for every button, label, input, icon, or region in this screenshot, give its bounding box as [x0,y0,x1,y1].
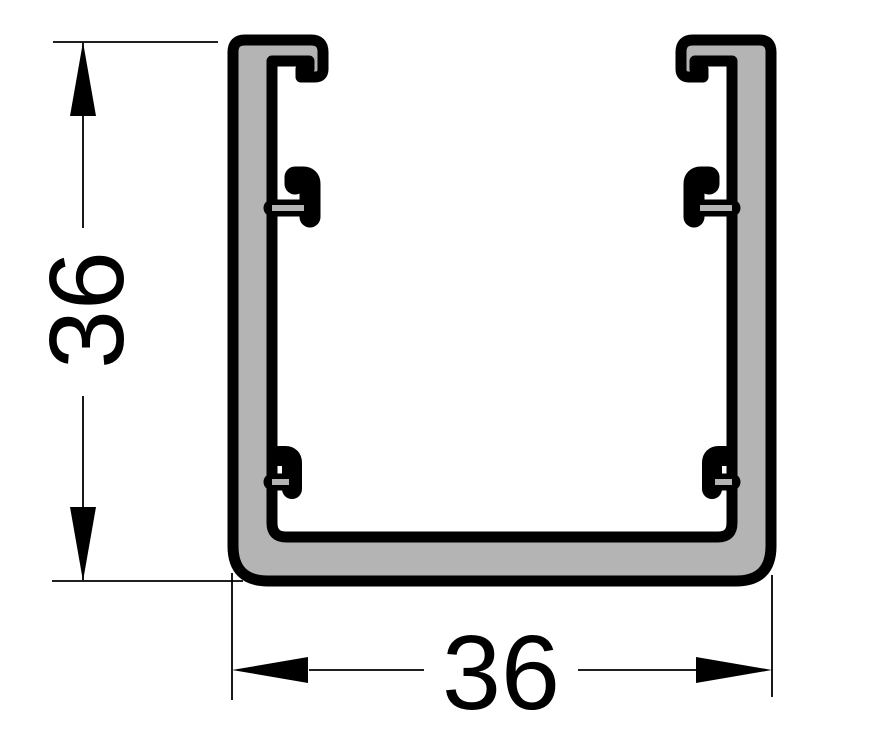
profile-cross-section [233,40,771,581]
dimension-width: 36 [232,573,772,732]
profile-body [233,40,771,581]
hook-upper-right [694,177,732,217]
hook-upper-left [272,177,310,217]
dimension-height: 36 [28,42,243,581]
arrowhead-down-icon [70,507,96,581]
drawing-canvas: 36 36 [0,0,892,743]
dimension-height-label: 36 [28,251,146,369]
arrowhead-right-icon [696,657,772,683]
dimension-width-label: 36 [442,614,560,732]
arrowhead-left-icon [232,657,308,683]
arrowhead-up-icon [70,42,96,116]
technical-drawing: 36 36 [0,0,892,743]
